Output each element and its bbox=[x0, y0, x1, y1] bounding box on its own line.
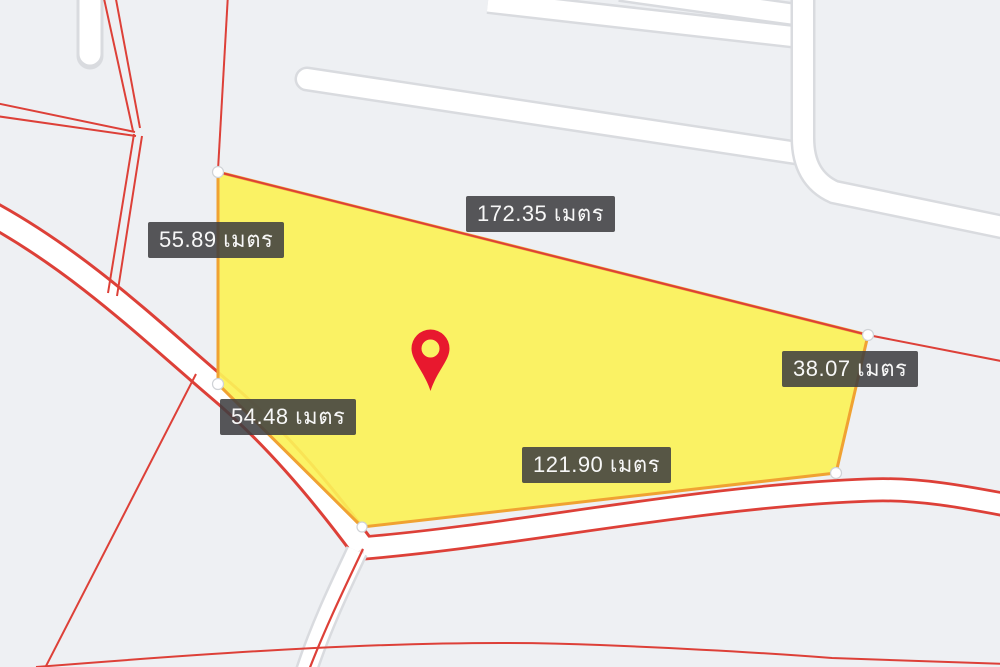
map-graphics bbox=[0, 0, 1000, 667]
measurement-label-left-lower: 54.48 เมตร bbox=[220, 399, 356, 435]
measurement-label-left-upper: 55.89 เมตร bbox=[148, 222, 284, 258]
vertex-handle bbox=[863, 330, 874, 341]
measurement-label-bottom: 121.90 เมตร bbox=[522, 447, 671, 483]
measurement-label-right: 38.07 เมตร bbox=[782, 351, 918, 387]
vertex-handle bbox=[213, 379, 224, 390]
vertex-handle bbox=[831, 468, 842, 479]
map-canvas[interactable]: 55.89 เมตร 172.35 เมตร 38.07 เมตร 54.48 … bbox=[0, 0, 1000, 667]
vertex-handle bbox=[357, 522, 367, 532]
vertex-handle bbox=[213, 167, 224, 178]
measurement-label-top: 172.35 เมตร bbox=[466, 196, 615, 232]
